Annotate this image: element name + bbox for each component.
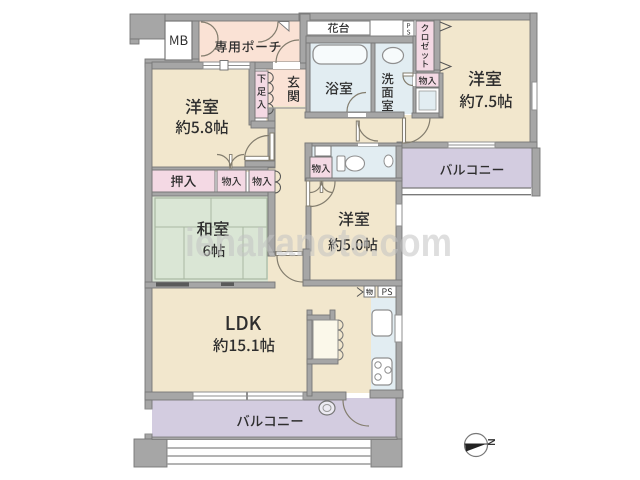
svg-text:N: N bbox=[485, 439, 496, 446]
svg-text:ienakanote.com: ienakanote.com bbox=[185, 221, 452, 265]
